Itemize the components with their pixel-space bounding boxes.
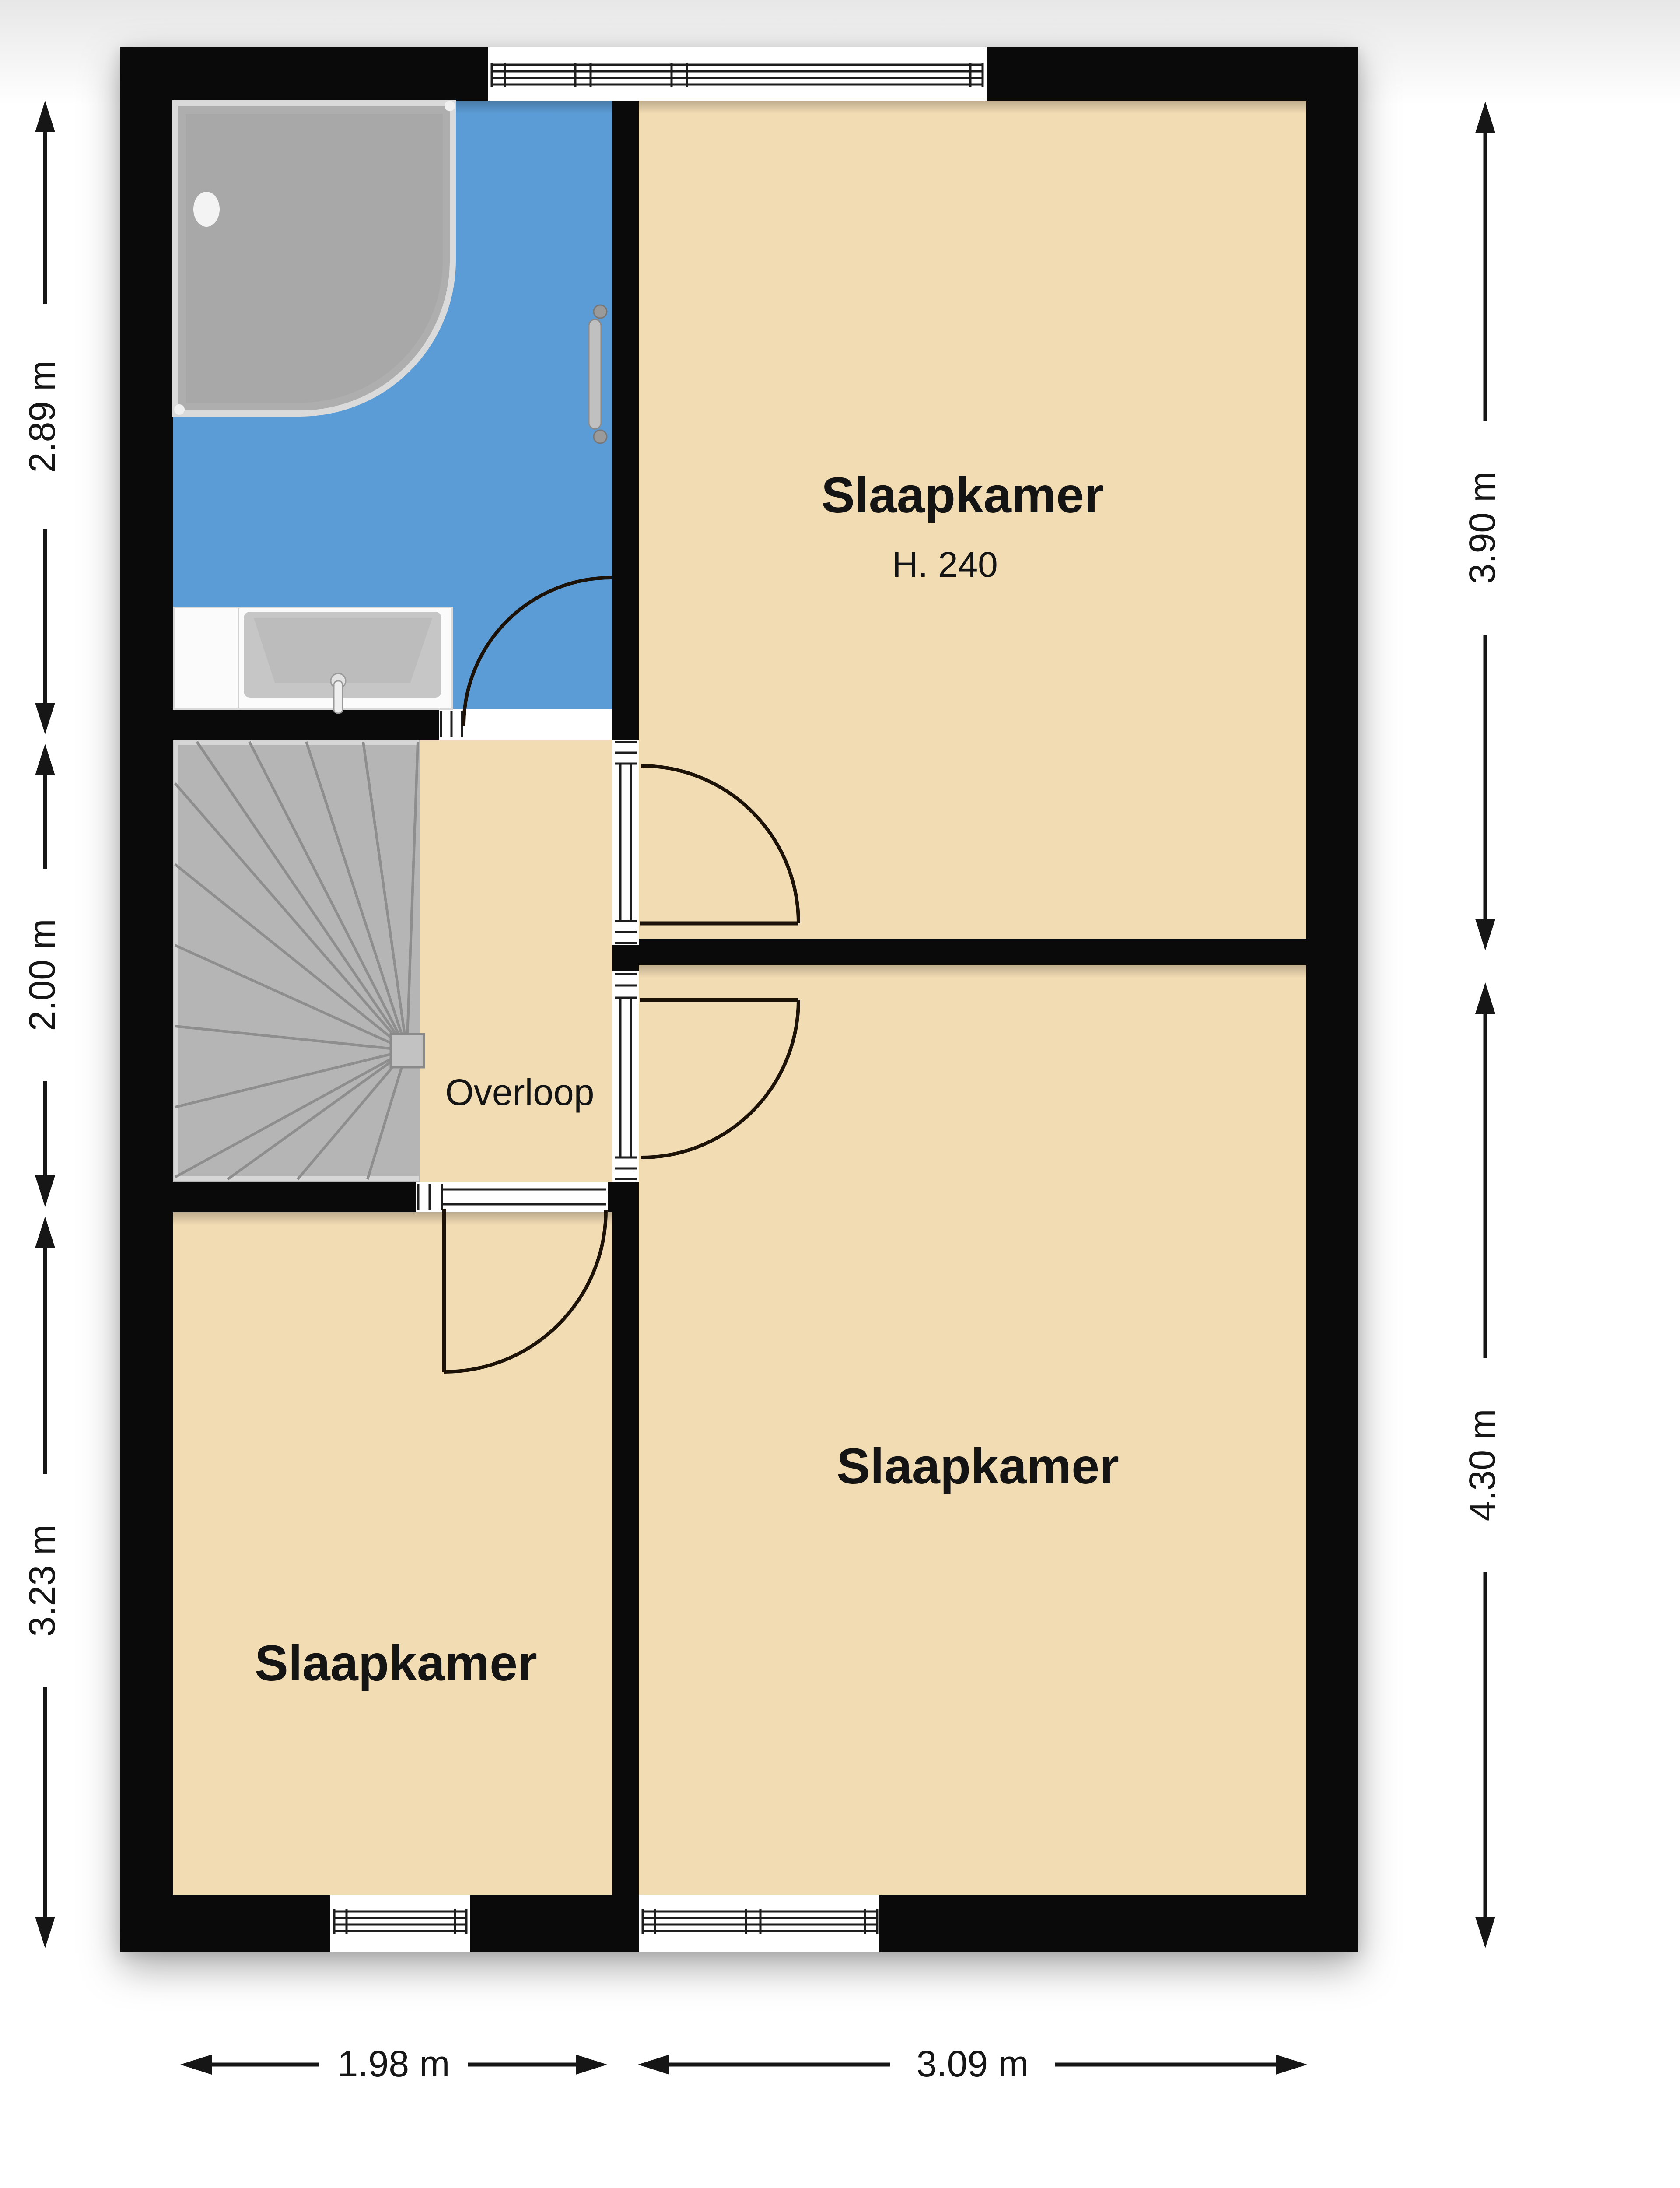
staircase — [173, 740, 424, 1182]
bedroom-top-shade — [639, 101, 1306, 114]
floor-plan-canvas: Slaapkamer H. 240 Overloop Slaapkamer Sl… — [0, 0, 1680, 2188]
dimension-right-2: 4.30 m — [1462, 982, 1503, 1948]
bedroom-top-label: Slaapkamer — [821, 467, 1104, 523]
shower-frame-dot — [174, 404, 185, 415]
window-bottom-left — [330, 1895, 470, 1952]
dimension-label: 3.09 m — [917, 2043, 1029, 2084]
dimension-label: 2.00 m — [21, 919, 63, 1031]
washbasin — [174, 607, 452, 713]
floor-plan-page: Slaapkamer H. 240 Overloop Slaapkamer Sl… — [0, 0, 1680, 2188]
stair-newel-post — [391, 1034, 424, 1067]
floor-plan: Slaapkamer H. 240 Overloop Slaapkamer Sl… — [120, 47, 1358, 1952]
bedroom-top-ceiling-height: H. 240 — [892, 545, 998, 585]
handle-bar-icon — [589, 319, 601, 429]
dimension-label: 3.90 m — [1462, 472, 1503, 584]
bedroom-left-floor — [173, 1212, 612, 1895]
dimension-bottom-2: 3.09 m — [638, 2043, 1307, 2084]
faucet-spout — [334, 681, 343, 713]
bedroom-right-floor — [639, 965, 1306, 1895]
dimension-bottom-1: 1.98 m — [180, 2043, 607, 2084]
dimension-left-1: 2.89 m — [21, 101, 63, 734]
shower-head-icon — [193, 192, 220, 227]
door-opening — [416, 1182, 608, 1212]
window-top — [488, 47, 987, 101]
doorway-bedroom-top — [612, 740, 639, 945]
dimension-label: 3.23 m — [21, 1525, 63, 1637]
dimension-left-2: 2.00 m — [21, 744, 63, 1207]
dimension-label: 1.98 m — [338, 2043, 450, 2084]
doorway-bedroom-right — [612, 971, 639, 1182]
window-glass — [639, 1895, 879, 1952]
doorway-bedroom-left — [416, 1182, 608, 1212]
bedroom-left-shade — [173, 1212, 612, 1225]
shower-frame-dot — [444, 101, 455, 111]
window-glass — [330, 1895, 470, 1952]
landing-floor — [420, 740, 612, 1182]
landing-label: Overloop — [445, 1072, 595, 1113]
door-opening — [612, 971, 639, 1182]
door-opening — [612, 740, 639, 945]
bedroom-left-label: Slaapkamer — [255, 1635, 537, 1691]
basin-inner — [254, 618, 432, 683]
bedroom-right-shade — [639, 965, 1306, 978]
bedroom-right-label: Slaapkamer — [836, 1438, 1119, 1494]
dimension-label: 2.89 m — [21, 361, 63, 473]
disclaimer: Deze tekening geeft een indicatie van de… — [131, 2165, 1525, 2188]
handle-dot-icon — [594, 430, 607, 443]
window-bottom-right — [639, 1895, 879, 1952]
window-glass — [488, 47, 987, 101]
dimension-left-3: 3.23 m — [21, 1217, 63, 1948]
dimension-label: 4.30 m — [1462, 1409, 1503, 1522]
dimension-right-1: 3.90 m — [1462, 102, 1503, 950]
handle-dot-icon — [594, 305, 607, 318]
shower — [174, 101, 455, 415]
